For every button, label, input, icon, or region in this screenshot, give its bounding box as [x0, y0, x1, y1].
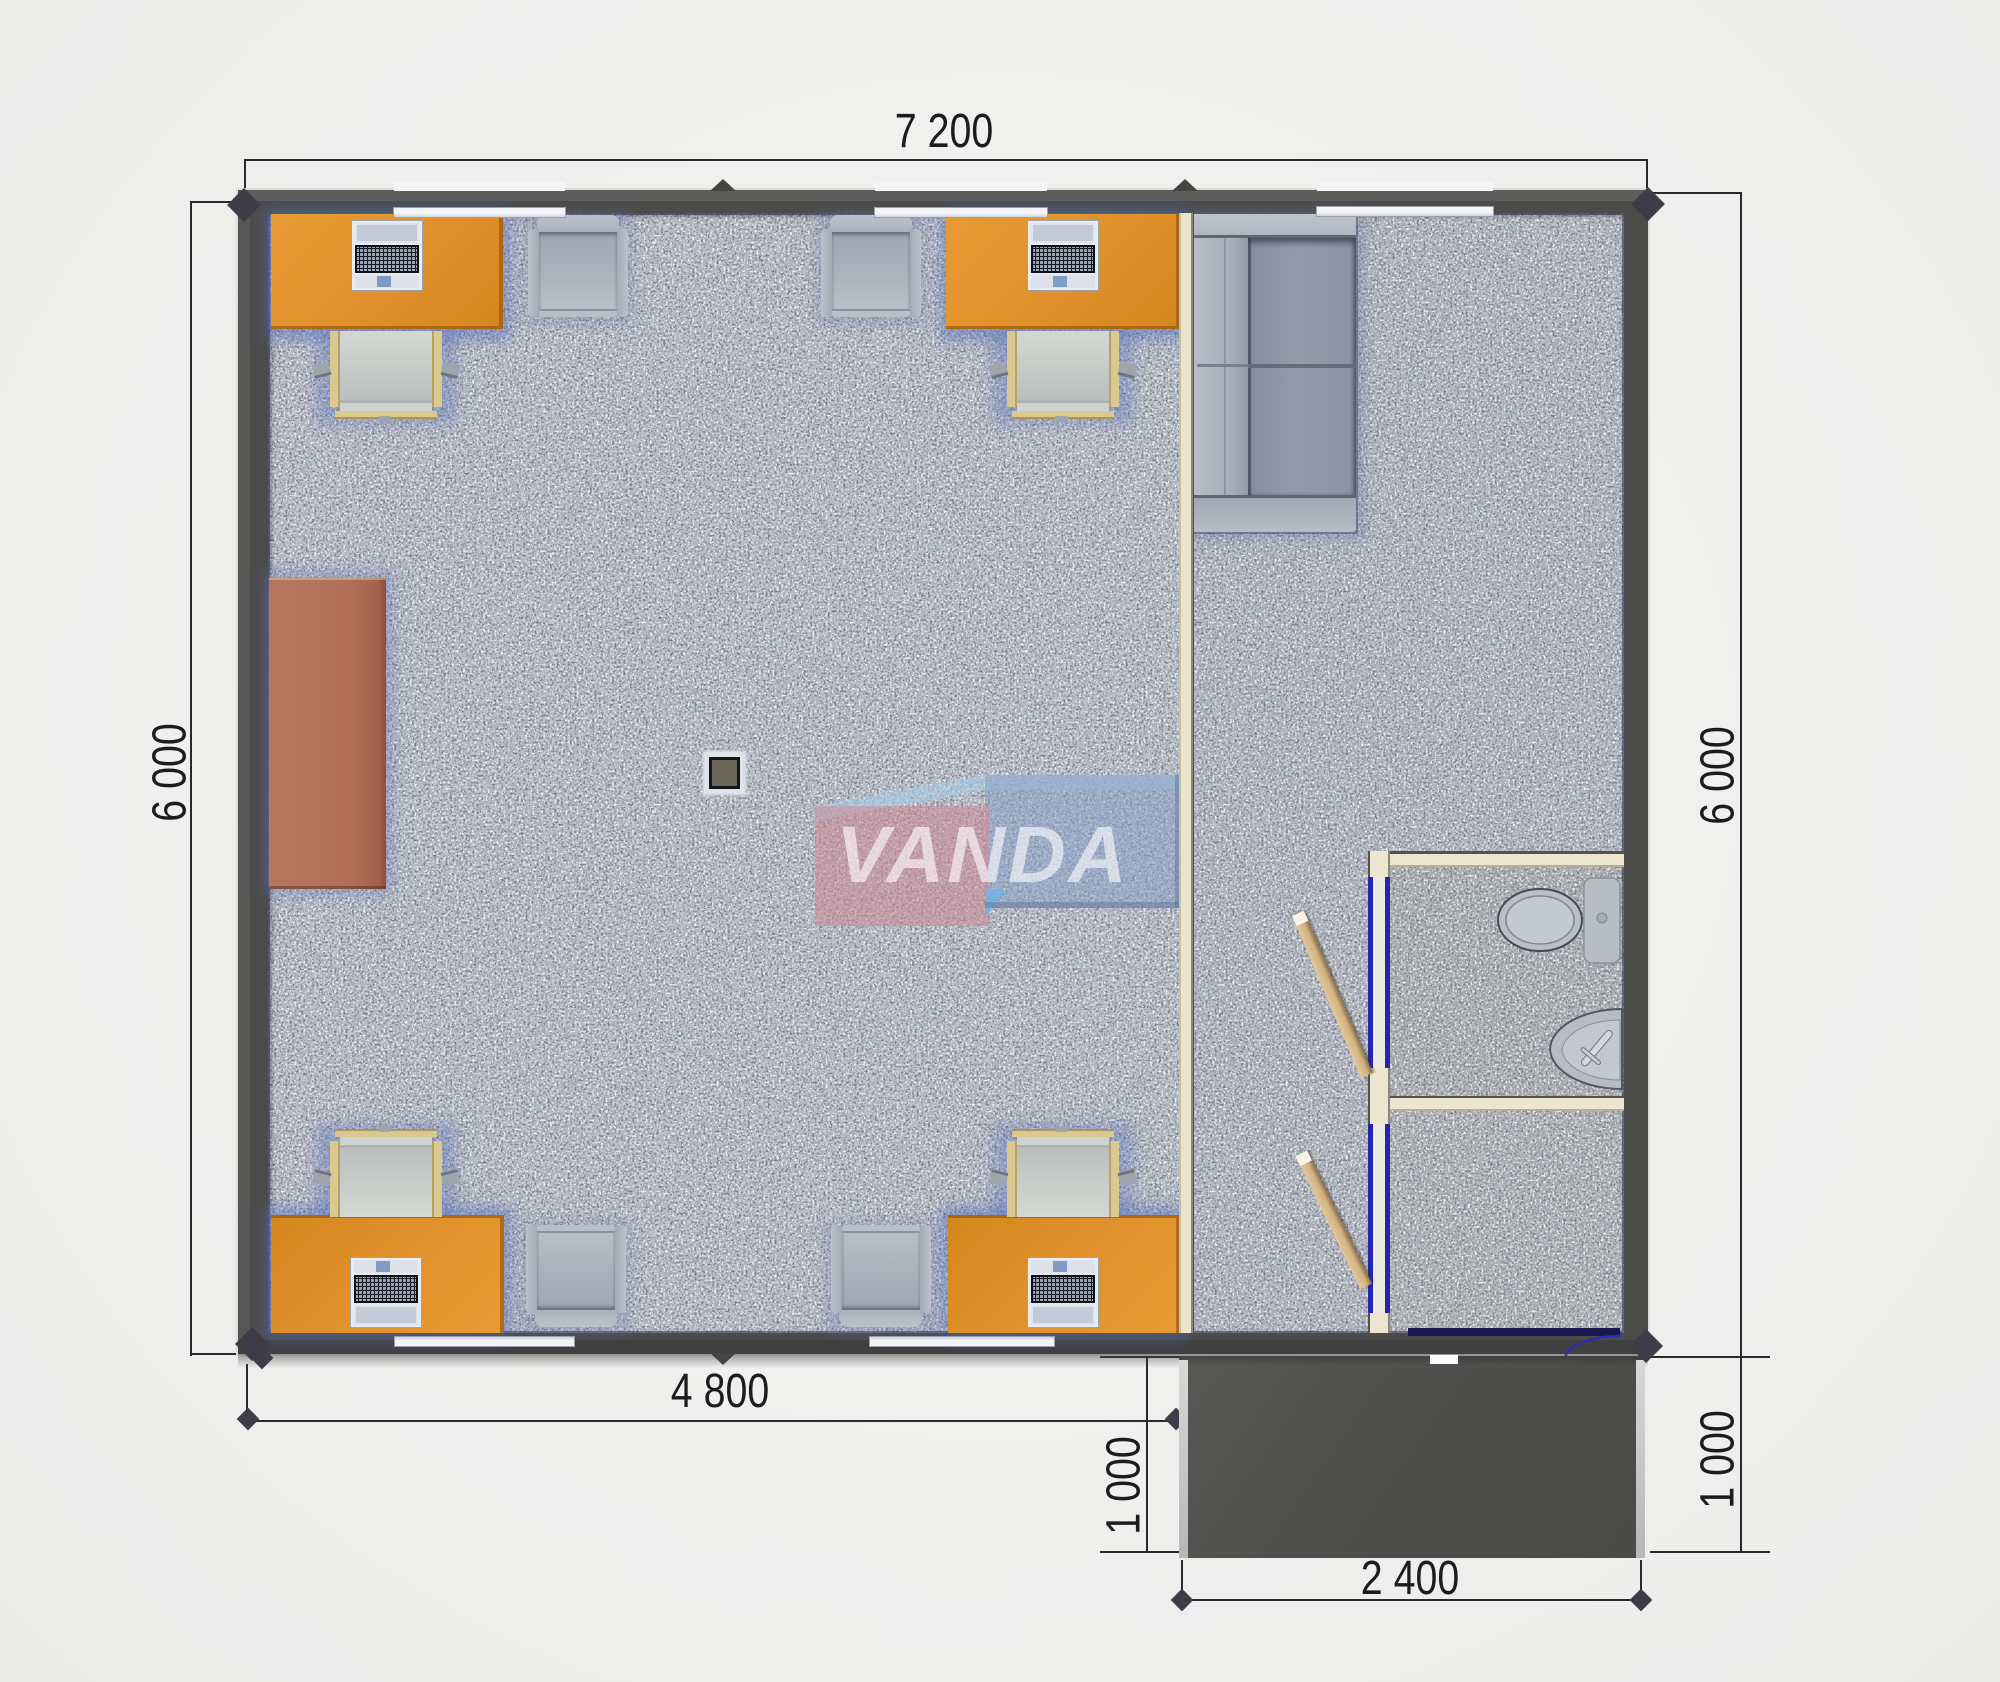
svg-text:VANDA: VANDA — [836, 810, 1130, 899]
